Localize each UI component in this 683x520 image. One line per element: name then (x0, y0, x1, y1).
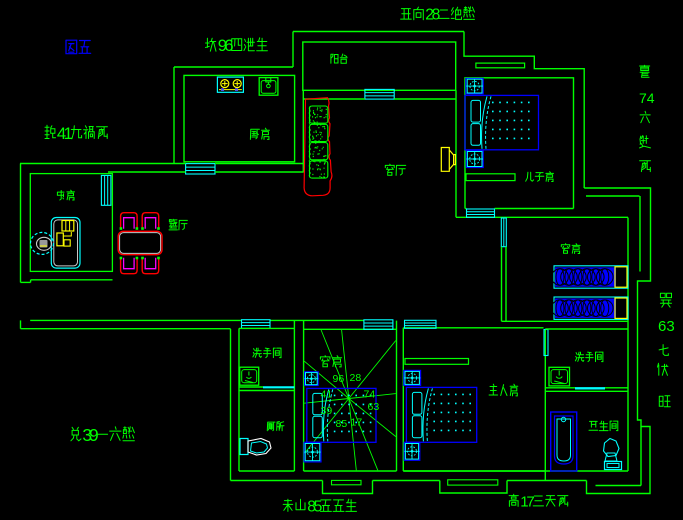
svg-text:74: 74 (639, 90, 655, 106)
svg-text:63: 63 (658, 318, 675, 335)
svg-text:39: 39 (321, 405, 333, 417)
svg-text:8: 8 (432, 7, 441, 24)
svg-text:1: 1 (64, 124, 73, 143)
svg-text:63: 63 (368, 401, 380, 413)
svg-text:28: 28 (350, 372, 362, 384)
svg-text:74: 74 (364, 389, 376, 401)
svg-text:7: 7 (526, 494, 534, 511)
svg-text:9: 9 (89, 425, 99, 445)
svg-text:5: 5 (314, 499, 323, 516)
svg-text:85: 85 (336, 418, 348, 430)
svg-text:17: 17 (351, 417, 363, 429)
svg-text:96: 96 (333, 373, 345, 385)
svg-text:41: 41 (321, 389, 333, 401)
